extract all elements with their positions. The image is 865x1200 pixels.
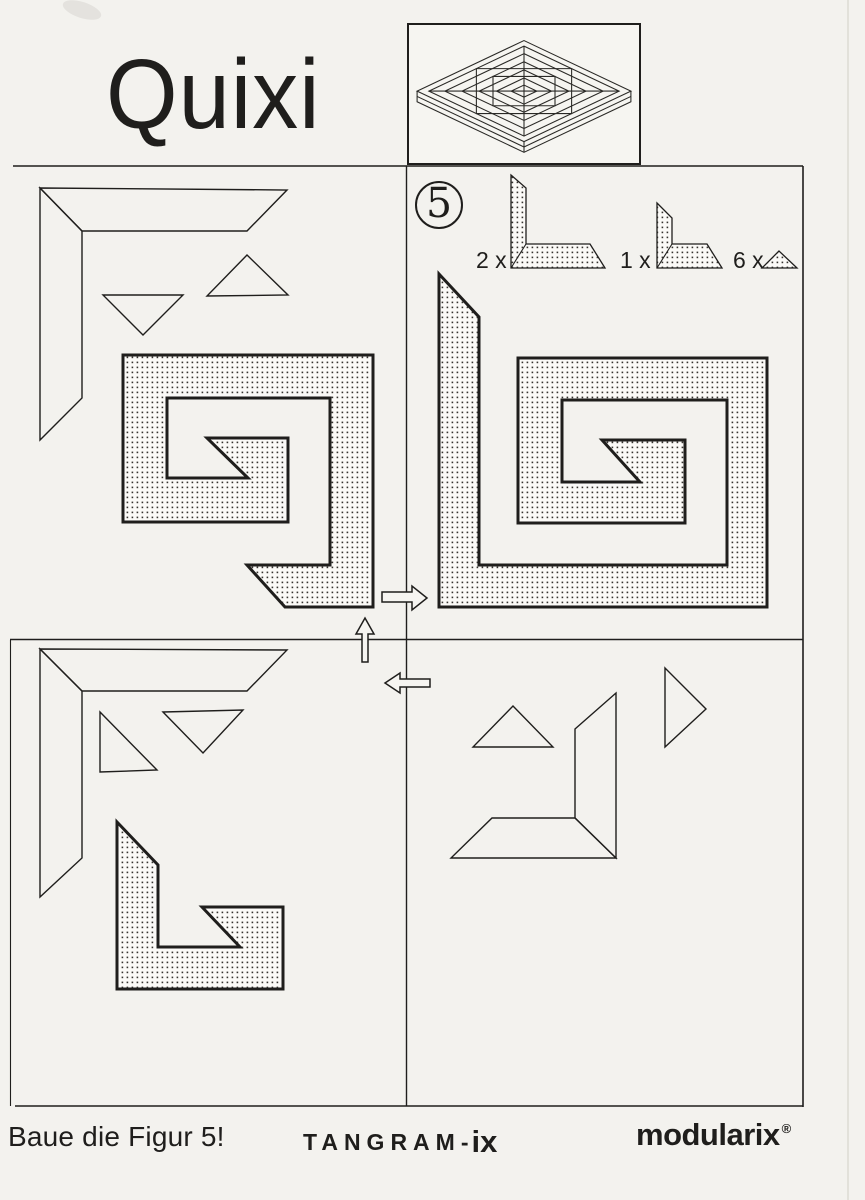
inventory-triangle-piece-dotted bbox=[762, 251, 797, 268]
br-corner-vertical-outline bbox=[575, 693, 616, 858]
tr-figure5-spiral-dotted bbox=[439, 274, 767, 607]
modularix-logo-text: modularix bbox=[636, 1117, 780, 1152]
br-corner-horizontal-outline bbox=[451, 818, 616, 858]
inventory-small-l-piece-dotted bbox=[657, 203, 722, 268]
brand-suffix: ix bbox=[472, 1124, 498, 1159]
figure-number-badge: 5 bbox=[415, 181, 463, 229]
bl-corner-vertical-outline bbox=[40, 649, 82, 897]
inventory-count-triangle: 6 x bbox=[733, 249, 764, 272]
inventory-count-small-l: 1 x bbox=[620, 249, 651, 272]
arrow-left bbox=[385, 673, 430, 693]
tl-triangle-down-outline bbox=[103, 295, 183, 335]
modularix-logo: modularix® bbox=[636, 1117, 789, 1153]
tl-triangle-up-outline bbox=[207, 255, 288, 296]
bl-corner-horizontal-outline bbox=[40, 649, 287, 691]
tangram-ix-logo: TANGRAM-ix bbox=[303, 1124, 497, 1160]
br-triangle-up-outline bbox=[473, 706, 553, 747]
arrow-right bbox=[382, 586, 427, 610]
br-triangle-right-outline bbox=[665, 668, 706, 747]
tl-corner-vertical-outline bbox=[40, 188, 82, 440]
scanned-instruction-page: { "style": { "ink": "#1f1e1c", "paper": … bbox=[0, 0, 865, 1200]
tl-partial-spiral-dotted bbox=[123, 355, 373, 607]
registered-trademark-icon: ® bbox=[782, 1121, 791, 1136]
inventory-large-l-piece-dotted bbox=[511, 175, 605, 268]
bl-right-angle-triangle-outline bbox=[100, 712, 157, 772]
bl-triangle-down-outline bbox=[163, 710, 243, 753]
brand-prefix: TANGRAM- bbox=[303, 1129, 475, 1155]
build-instruction: Baue die Figur 5! bbox=[8, 1121, 225, 1153]
tl-corner-horizontal-outline bbox=[40, 188, 287, 231]
inventory-count-large-l: 2 x bbox=[476, 249, 507, 272]
figure-number: 5 bbox=[426, 183, 452, 224]
bl-interlocked-l-pieces-dotted bbox=[117, 822, 283, 989]
